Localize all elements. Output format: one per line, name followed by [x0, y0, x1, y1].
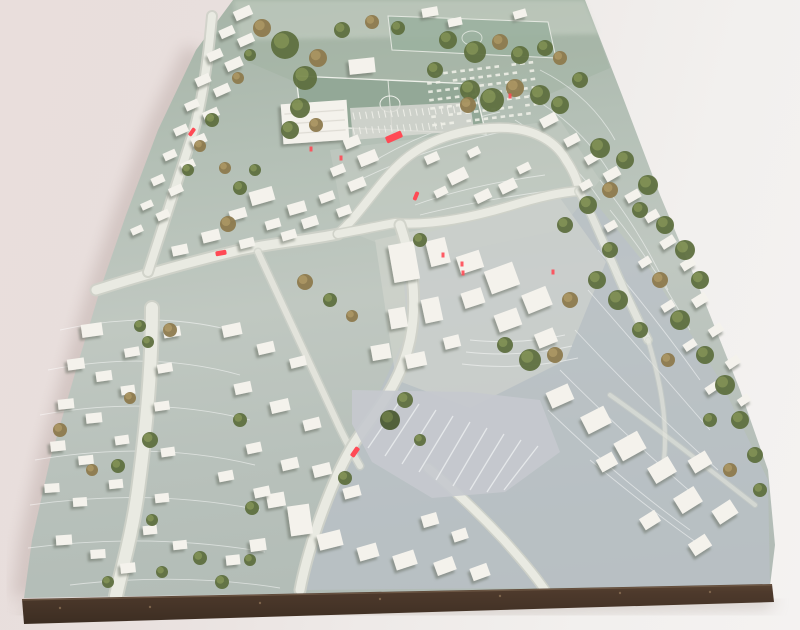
grave-plot: [460, 69, 465, 72]
model-tree: [413, 233, 427, 247]
grave-plot: [483, 117, 488, 120]
grave-plot: [478, 75, 483, 78]
grave-plot: [445, 88, 450, 91]
tree-canopy-highlight: [634, 203, 643, 212]
grave-plot: [477, 67, 482, 70]
grave-plot: [427, 82, 432, 85]
grave-plot: [457, 112, 462, 115]
scale-model-photograph: [0, 0, 800, 630]
grave-plot: [456, 104, 461, 107]
model-building: [155, 493, 170, 503]
tree-canopy-highlight: [103, 577, 110, 584]
tree-canopy-highlight: [112, 460, 120, 468]
grave-plot: [509, 114, 514, 117]
model-tree: [193, 551, 207, 565]
tree-canopy-highlight: [466, 43, 478, 55]
model-tree: [365, 15, 379, 29]
tree-canopy-highlight: [429, 63, 438, 72]
tree-canopy-highlight: [415, 435, 422, 442]
grave-plot: [447, 105, 452, 108]
model-tree: [511, 46, 529, 64]
model-tree: [632, 202, 648, 218]
tree-canopy-highlight: [295, 68, 308, 81]
model-tree: [297, 274, 313, 290]
model-tree: [142, 336, 154, 348]
model-tree: [492, 34, 508, 50]
grave-plot: [494, 65, 499, 68]
tree-canopy-highlight: [698, 347, 708, 357]
tree-canopy-highlight: [144, 433, 153, 442]
tree-canopy-highlight: [339, 472, 347, 480]
tree-canopy-highlight: [539, 41, 548, 50]
model-tree: [309, 118, 323, 132]
model-photo-stage: [0, 0, 800, 630]
grave-plot: [488, 83, 493, 86]
model-building: [226, 554, 241, 565]
grave-plot: [522, 79, 527, 82]
grave-plot: [526, 112, 531, 115]
grave-plot: [504, 72, 509, 75]
tree-canopy-highlight: [125, 393, 132, 400]
tree-canopy-highlight: [521, 351, 533, 363]
grave-plot: [449, 121, 454, 124]
model-tree: [562, 292, 578, 308]
grave-plot: [474, 110, 479, 113]
model-building: [78, 455, 94, 466]
tree-canopy-highlight: [233, 73, 240, 80]
grave-plot: [492, 116, 497, 119]
model-tree: [656, 216, 674, 234]
tree-canopy-highlight: [554, 52, 562, 60]
model-tree: [249, 164, 261, 176]
model-tree: [602, 242, 618, 258]
model-tree: [691, 271, 709, 289]
tree-canopy-highlight: [250, 165, 257, 172]
tree-canopy-highlight: [564, 293, 573, 302]
model-tree: [233, 413, 247, 427]
tree-canopy-highlight: [441, 32, 451, 42]
tree-canopy-highlight: [693, 272, 703, 282]
tree-canopy-highlight: [581, 197, 591, 207]
model-tree: [703, 413, 717, 427]
tree-canopy-highlight: [604, 243, 613, 252]
model-tree: [111, 459, 125, 473]
grave-plot: [439, 106, 444, 109]
model-tree: [232, 72, 244, 84]
tree-canopy-highlight: [414, 234, 422, 242]
tree-canopy-highlight: [292, 100, 303, 111]
model-tree: [182, 164, 194, 176]
model-tree: [696, 346, 714, 364]
model-tree: [271, 31, 299, 59]
tree-canopy-highlight: [654, 273, 663, 282]
model-tree: [156, 566, 168, 578]
tree-canopy-highlight: [255, 20, 265, 30]
model-tree: [616, 151, 634, 169]
tree-canopy-highlight: [299, 275, 308, 284]
model-building: [90, 549, 106, 559]
model-tree: [391, 21, 405, 35]
tree-canopy-highlight: [672, 312, 683, 323]
tree-canopy-highlight: [590, 272, 600, 282]
wood-speckle: [59, 607, 61, 609]
model-building: [86, 412, 103, 424]
tree-canopy-highlight: [462, 98, 471, 107]
model-tree: [281, 121, 299, 139]
model-tree: [134, 320, 146, 332]
wood-speckle: [709, 591, 711, 593]
grave-plot: [432, 123, 437, 126]
model-tree: [427, 62, 443, 78]
model-building: [56, 534, 73, 545]
model-building: [173, 540, 188, 550]
model-tree: [219, 162, 231, 174]
model-tree: [723, 463, 737, 477]
tree-canopy-highlight: [143, 337, 150, 344]
model-tree: [579, 196, 597, 214]
model-tree: [547, 347, 563, 363]
tree-canopy-highlight: [147, 515, 154, 522]
model-tree: [205, 113, 219, 127]
grave-plot: [528, 61, 533, 64]
model-tree: [309, 49, 327, 67]
grave-plot: [470, 77, 475, 80]
model-tree: [142, 432, 158, 448]
wood-speckle: [259, 602, 261, 604]
grave-plot: [453, 79, 458, 82]
model-tree: [245, 501, 259, 515]
model-tree: [572, 72, 588, 88]
tree-canopy-highlight: [610, 292, 621, 303]
tree-canopy-highlight: [164, 324, 172, 332]
model-tree: [519, 349, 541, 371]
model-tree: [244, 49, 256, 61]
model-tree: [530, 85, 550, 105]
grave-plot: [530, 78, 535, 81]
grave-plot: [428, 90, 433, 93]
grave-plot: [512, 71, 517, 74]
tree-canopy-highlight: [311, 50, 321, 60]
model-building: [73, 497, 88, 507]
model-tree: [602, 182, 618, 198]
model-tree: [338, 471, 352, 485]
tree-canopy-highlight: [245, 555, 252, 562]
grave-plot: [500, 115, 505, 118]
model-tree: [334, 22, 350, 38]
tree-canopy-highlight: [549, 348, 558, 357]
red-marker: [310, 147, 313, 152]
tree-canopy-highlight: [592, 140, 603, 151]
grave-plot: [529, 69, 534, 72]
tree-canopy-highlight: [392, 22, 400, 30]
tree-canopy-highlight: [499, 338, 508, 347]
grave-plot: [431, 115, 436, 118]
model-tree: [293, 66, 317, 90]
model-building: [58, 398, 75, 410]
grave-plot: [524, 95, 529, 98]
tree-canopy-highlight: [283, 122, 293, 132]
model-tree: [638, 175, 658, 195]
tree-canopy-highlight: [183, 165, 190, 172]
model-tree: [588, 271, 606, 289]
grave-plot: [437, 89, 442, 92]
tree-canopy-highlight: [662, 354, 670, 362]
tree-canopy-highlight: [658, 217, 668, 227]
tree-canopy-highlight: [274, 33, 289, 48]
grave-plot: [487, 74, 492, 77]
model-tree: [86, 464, 98, 476]
model-tree: [146, 514, 158, 526]
model-building: [67, 357, 85, 370]
tree-canopy-highlight: [87, 465, 94, 472]
model-tree: [652, 272, 668, 288]
wood-speckle: [379, 598, 381, 600]
tree-canopy-highlight: [494, 35, 503, 44]
tree-canopy-highlight: [135, 321, 142, 328]
tree-canopy-highlight: [206, 114, 214, 122]
grave-plot: [469, 68, 474, 71]
tree-canopy-highlight: [640, 177, 651, 188]
tree-canopy-highlight: [216, 576, 224, 584]
tree-canopy-highlight: [604, 183, 613, 192]
model-tree: [753, 483, 767, 497]
tree-canopy-highlight: [234, 182, 242, 190]
tree-canopy-highlight: [482, 90, 495, 103]
grave-plot: [448, 113, 453, 116]
model-tree: [715, 375, 735, 395]
model-building: [50, 440, 66, 452]
grave-plot: [455, 95, 460, 98]
model-tree: [163, 323, 177, 337]
model-tree: [551, 96, 569, 114]
red-marker: [461, 262, 464, 267]
grave-plot: [438, 97, 443, 100]
model-tree: [233, 181, 247, 195]
model-tree: [380, 410, 400, 430]
grave-plot: [475, 118, 480, 121]
grave-plot: [496, 82, 501, 85]
tree-canopy-highlight: [462, 82, 473, 93]
grave-plot: [511, 63, 516, 66]
tree-canopy-highlight: [399, 393, 408, 402]
model-building: [388, 307, 408, 330]
grave-plot: [486, 66, 491, 69]
grave-plot: [443, 71, 448, 74]
grave-plot: [495, 73, 500, 76]
model-tree: [290, 98, 310, 118]
tree-canopy-highlight: [717, 377, 728, 388]
tree-canopy-highlight: [513, 47, 523, 57]
model-tree: [480, 88, 504, 112]
tree-canopy-highlight: [54, 424, 62, 432]
model-tree: [414, 434, 426, 446]
tree-canopy-highlight: [553, 97, 563, 107]
tree-canopy-highlight: [508, 80, 518, 90]
wood-speckle: [499, 595, 501, 597]
model-tree: [464, 41, 486, 63]
model-building: [249, 538, 267, 552]
model-tree: [102, 576, 114, 588]
tree-canopy-highlight: [324, 294, 332, 302]
model-tree: [553, 51, 567, 65]
model-tree: [590, 138, 610, 158]
model-building: [287, 504, 313, 537]
model-tree: [397, 392, 413, 408]
grave-plot: [436, 81, 441, 84]
grave-plot: [518, 113, 523, 116]
model-tree: [220, 216, 236, 232]
tree-canopy-highlight: [559, 218, 568, 227]
model-tree: [731, 411, 749, 429]
tree-canopy-highlight: [195, 141, 202, 148]
model-tree: [53, 423, 67, 437]
model-tree: [124, 392, 136, 404]
tree-canopy-highlight: [618, 152, 628, 162]
red-marker: [340, 156, 343, 161]
grave-plot: [452, 70, 457, 73]
tree-canopy-highlight: [704, 414, 712, 422]
tree-canopy-highlight: [246, 502, 254, 510]
grave-plot: [479, 84, 484, 87]
model-tree: [323, 293, 337, 307]
model-tree: [747, 447, 763, 463]
red-marker: [552, 270, 555, 275]
tree-canopy-highlight: [532, 87, 543, 98]
grave-plot: [429, 98, 434, 101]
model-tree: [675, 240, 695, 260]
tree-canopy-highlight: [220, 163, 227, 170]
tree-canopy-highlight: [677, 242, 688, 253]
model-building: [120, 562, 136, 574]
tree-canopy-highlight: [222, 217, 231, 226]
wood-speckle: [619, 592, 621, 594]
tree-canopy-highlight: [366, 16, 374, 24]
tree-canopy-highlight: [749, 448, 758, 457]
model-tree: [661, 353, 675, 367]
grave-plot: [441, 122, 446, 125]
model-tree: [460, 80, 480, 100]
tree-canopy-highlight: [336, 23, 345, 32]
model-tree: [670, 310, 690, 330]
model-building: [143, 525, 158, 535]
red-marker: [442, 253, 445, 258]
tree-canopy-highlight: [634, 323, 643, 332]
grave-plot: [508, 106, 513, 109]
grave-plot: [430, 107, 435, 110]
grave-plot: [466, 119, 471, 122]
model-tree: [632, 322, 648, 338]
grave-plot: [454, 87, 459, 90]
tree-canopy-highlight: [194, 552, 202, 560]
model-tree: [497, 337, 513, 353]
grave-plot: [461, 78, 466, 81]
tree-canopy-highlight: [754, 484, 762, 492]
model-tree: [439, 31, 457, 49]
red-marker: [509, 94, 512, 99]
tree-canopy-highlight: [724, 464, 732, 472]
model-tree: [608, 290, 628, 310]
tree-canopy-highlight: [234, 414, 242, 422]
model-tree: [557, 217, 573, 233]
tree-canopy-highlight: [382, 412, 393, 423]
grave-plot: [446, 96, 451, 99]
red-marker: [462, 271, 465, 276]
tree-canopy-highlight: [347, 311, 354, 318]
tree-canopy-highlight: [574, 73, 583, 82]
model-tree: [537, 40, 553, 56]
hall-annex-building: [348, 57, 375, 75]
model-tree: [346, 310, 358, 322]
model-tree: [215, 575, 229, 589]
model-tree: [460, 97, 476, 113]
model-tree: [194, 140, 206, 152]
wood-speckle: [149, 606, 151, 608]
model-building: [44, 483, 60, 493]
grave-plot: [525, 104, 530, 107]
model-tree: [244, 554, 256, 566]
tree-canopy-highlight: [157, 567, 164, 574]
model-tree: [253, 19, 271, 37]
tree-canopy-highlight: [245, 50, 252, 57]
tree-canopy-highlight: [733, 412, 743, 422]
model-building: [109, 479, 124, 489]
tree-canopy-highlight: [310, 119, 318, 127]
